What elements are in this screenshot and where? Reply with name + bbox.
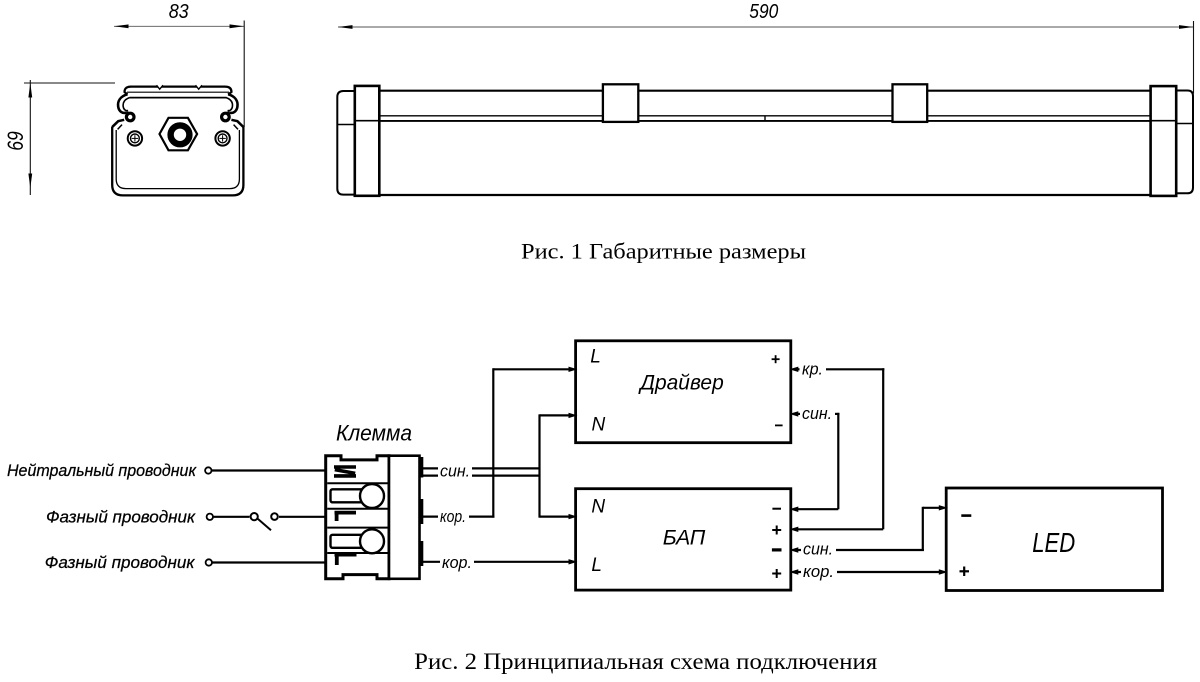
svg-text:син.: син. (802, 405, 832, 423)
svg-text:Фазный проводник: Фазный проводник (46, 507, 196, 526)
svg-text:83: 83 (169, 1, 189, 23)
svg-text:Рис. 2 Принципиальная схема по: Рис. 2 Принципиальная схема подключения (414, 649, 877, 675)
svg-text:Нейтральный проводник: Нейтральный проводник (7, 461, 197, 480)
svg-text:БАП: БАП (663, 526, 706, 550)
svg-text:син.: син. (803, 541, 833, 559)
svg-text:N: N (591, 497, 605, 518)
svg-text:LED: LED (1032, 527, 1075, 558)
svg-text:L: L (591, 555, 602, 576)
svg-text:син.: син. (440, 463, 470, 481)
svg-text:N: N (592, 415, 606, 436)
svg-text:Фазный проводник: Фазный проводник (45, 553, 196, 572)
svg-text:кор.: кор. (440, 508, 466, 526)
svg-text:кор.: кор. (803, 563, 834, 581)
svg-text:Драйвер: Драйвер (638, 371, 723, 395)
svg-text:69: 69 (3, 131, 28, 151)
svg-text:Рис. 1 Габаритные размеры: Рис. 1 Габаритные размеры (521, 239, 806, 264)
svg-text:кор.: кор. (442, 554, 472, 572)
svg-text:590: 590 (749, 1, 778, 23)
svg-text:кр.: кр. (802, 361, 823, 379)
svg-text:Клемма: Клемма (336, 421, 412, 446)
svg-text:L: L (590, 347, 601, 368)
